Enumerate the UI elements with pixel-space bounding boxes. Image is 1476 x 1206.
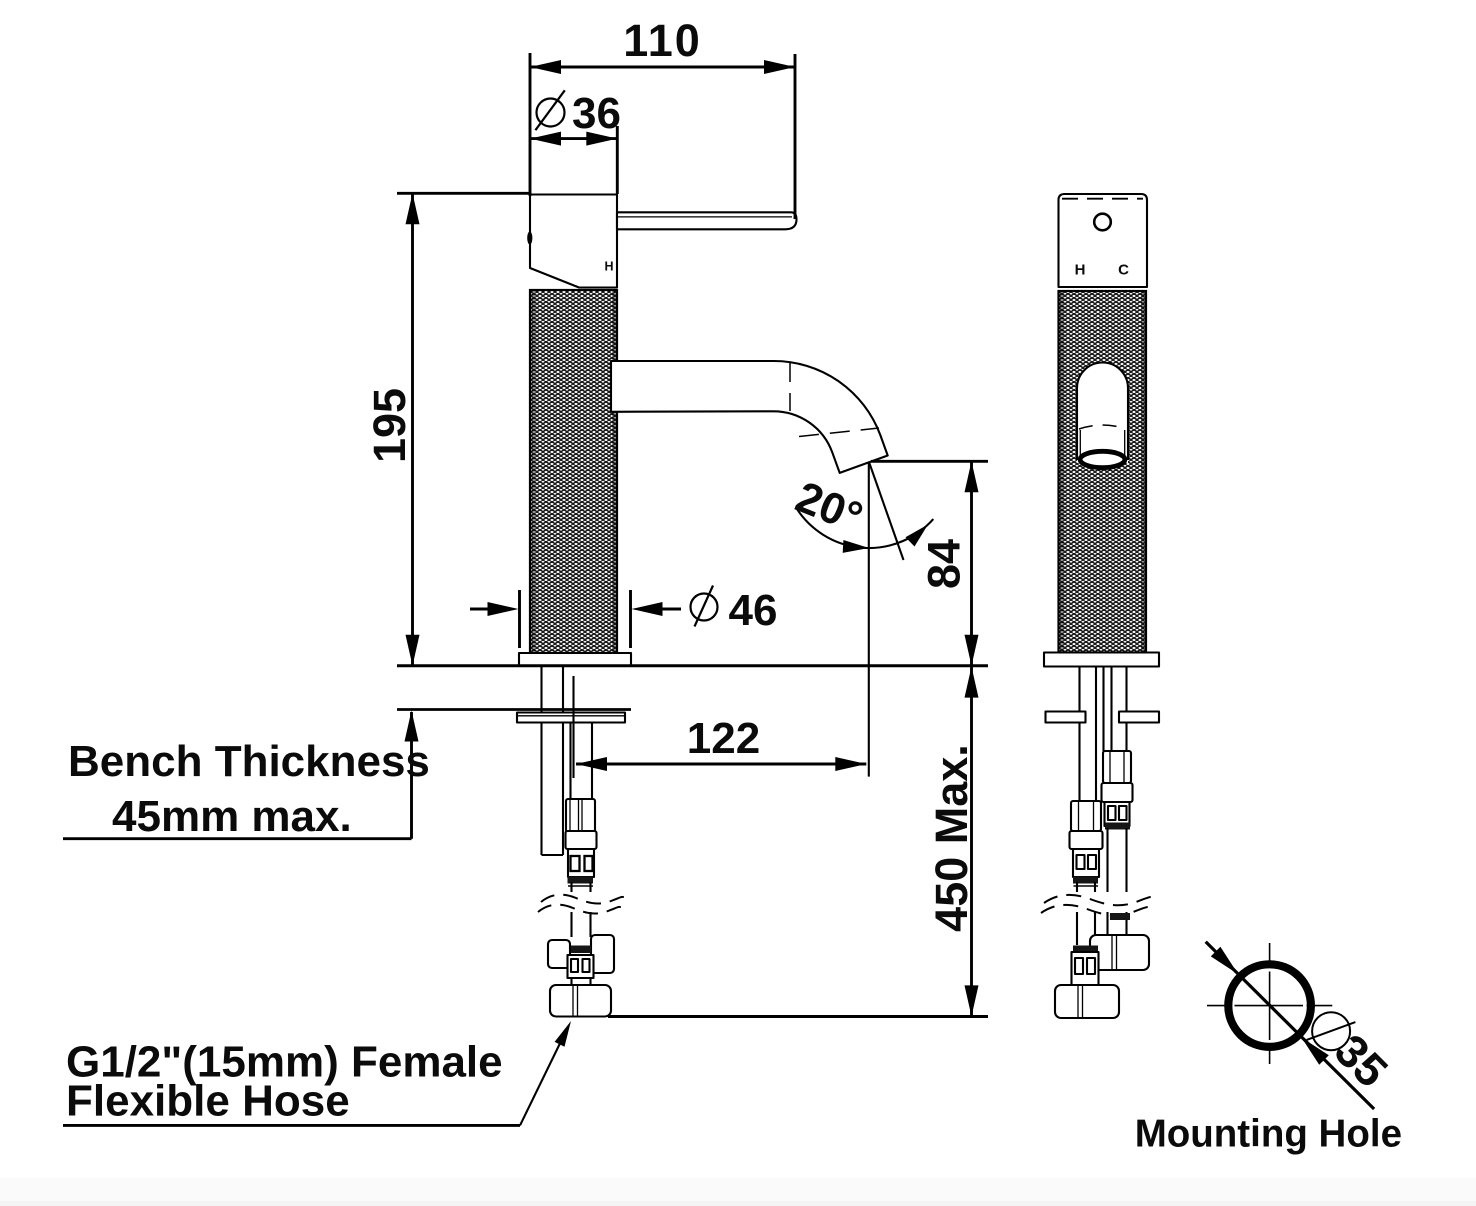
svg-text:45mm max.: 45mm max. (112, 792, 352, 841)
svg-text:C: C (1118, 262, 1129, 279)
svg-text:195: 195 (364, 388, 415, 463)
svg-text:122: 122 (687, 714, 760, 763)
svg-text:Bench Thickness: Bench Thickness (68, 737, 430, 786)
svg-text:H: H (1075, 262, 1086, 279)
svg-text:46: 46 (729, 586, 778, 635)
svg-text:36: 36 (572, 89, 621, 138)
svg-text:Flexible Hose: Flexible Hose (66, 1077, 350, 1126)
svg-text:Mounting Hole: Mounting Hole (1135, 1113, 1402, 1156)
svg-text:H: H (604, 260, 613, 274)
svg-text:110: 110 (623, 15, 702, 66)
svg-text:84: 84 (919, 539, 970, 589)
svg-text:450 Max.: 450 Max. (926, 744, 977, 932)
